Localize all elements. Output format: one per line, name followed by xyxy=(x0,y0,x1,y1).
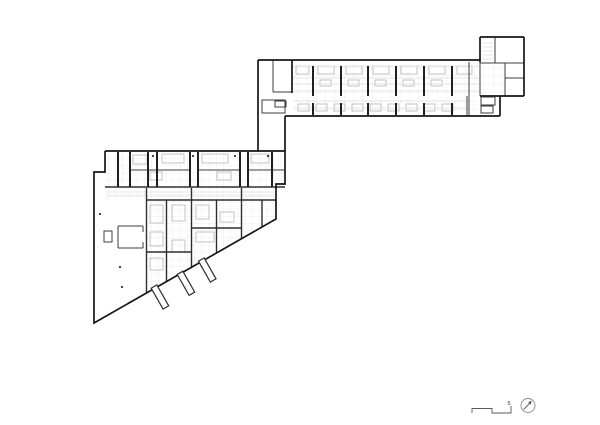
facade-fin xyxy=(177,271,195,295)
facade-fin xyxy=(151,285,169,309)
drawing-sheet: 5 xyxy=(0,0,600,425)
floor-plan: 5 xyxy=(0,0,600,425)
scale-bar-label: 5 xyxy=(508,401,511,407)
scale-label: 5 xyxy=(508,401,511,407)
furniture-grid-areas xyxy=(106,63,504,292)
facade-fin xyxy=(198,258,216,282)
floor-plan-canvas: 5 xyxy=(0,0,600,425)
